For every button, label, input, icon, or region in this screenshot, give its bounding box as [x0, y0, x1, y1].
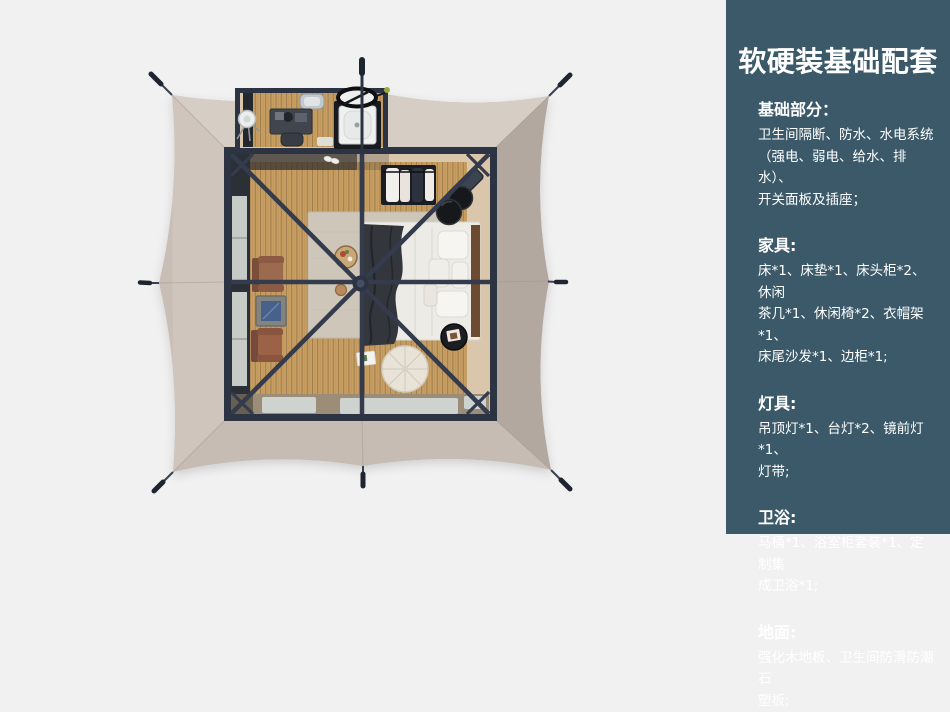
stake-top-left — [151, 74, 161, 84]
canvas-face-right — [489, 96, 551, 470]
panel-title: 软硬装基础配套 — [726, 46, 950, 78]
section-bathroom: 卫浴: 马桶*1、浴室柜套装*1、定制集 成卫浴*1; — [758, 508, 936, 598]
bathroom — [237, 60, 390, 151]
section-bathroom-heading: 卫浴: — [758, 508, 936, 528]
vanity-stool — [281, 133, 303, 146]
bread-plate — [336, 285, 347, 296]
main-room — [227, 150, 494, 418]
section-lighting-heading: 灯具: — [758, 394, 936, 414]
drain — [355, 123, 360, 128]
pouf — [382, 346, 428, 392]
stake-bottom-right — [561, 480, 570, 489]
section-flooring-heading: 地面: — [758, 623, 936, 643]
canvas-face-left — [172, 95, 231, 472]
section-bathroom-body: 马桶*1、浴室柜套装*1、定制集 成卫浴*1; — [758, 533, 936, 598]
section-flooring-body: 强化木地板、卫生间防滑防潮石 塑板; — [758, 648, 936, 712]
section-furniture: 家具: 床*1、床垫*1、床头柜*2、休闲 茶几*1、休闲椅*2、衣帽架*1、 … — [758, 236, 936, 369]
section-furniture-heading: 家具: — [758, 236, 936, 256]
info-panel: 软硬装基础配套 基础部分： 卫生间隔断、防水、水电系统 （强电、弱电、给水、排水… — [726, 0, 950, 534]
tea-table — [256, 296, 286, 326]
round-side-table — [441, 324, 467, 350]
plant-dot — [384, 87, 390, 93]
stake-top-right — [560, 75, 570, 85]
section-basics-heading: 基础部分： — [758, 100, 936, 120]
clothes-rack — [381, 165, 436, 205]
section-basics: 基础部分： 卫生间隔断、防水、水电系统 （强电、弱电、给水、排水）、 开关面板及… — [758, 100, 936, 211]
bottom-window-1 — [262, 397, 316, 413]
lounge-chair-2 — [251, 328, 283, 362]
section-furniture-body: 床*1、床垫*1、床头柜*2、休闲 茶几*1、休闲椅*2、衣帽架*1、 床尾沙发… — [758, 261, 936, 369]
tent-floorplan-render — [0, 0, 726, 534]
section-basics-body: 卫生间隔断、防水、水电系统 （强电、弱电、给水、排水）、 开关面板及插座； — [758, 125, 936, 211]
center-hub — [353, 276, 369, 292]
ceiling-light — [300, 94, 324, 109]
lounge-chair-1 — [252, 256, 284, 292]
section-lighting-body: 吊顶灯*1、台灯*2、镜前灯*1、 灯带; — [758, 419, 936, 484]
stake-left-mid — [140, 283, 150, 284]
section-lighting: 灯具: 吊顶灯*1、台灯*2、镜前灯*1、 灯带; — [758, 394, 936, 484]
bath-mat — [317, 137, 333, 146]
stake-bottom-left — [154, 482, 163, 491]
bottom-window-2 — [340, 398, 458, 414]
floor-tray — [356, 351, 375, 366]
section-flooring: 地面: 强化木地板、卫生间防滑防潮石 塑板; — [758, 623, 936, 712]
